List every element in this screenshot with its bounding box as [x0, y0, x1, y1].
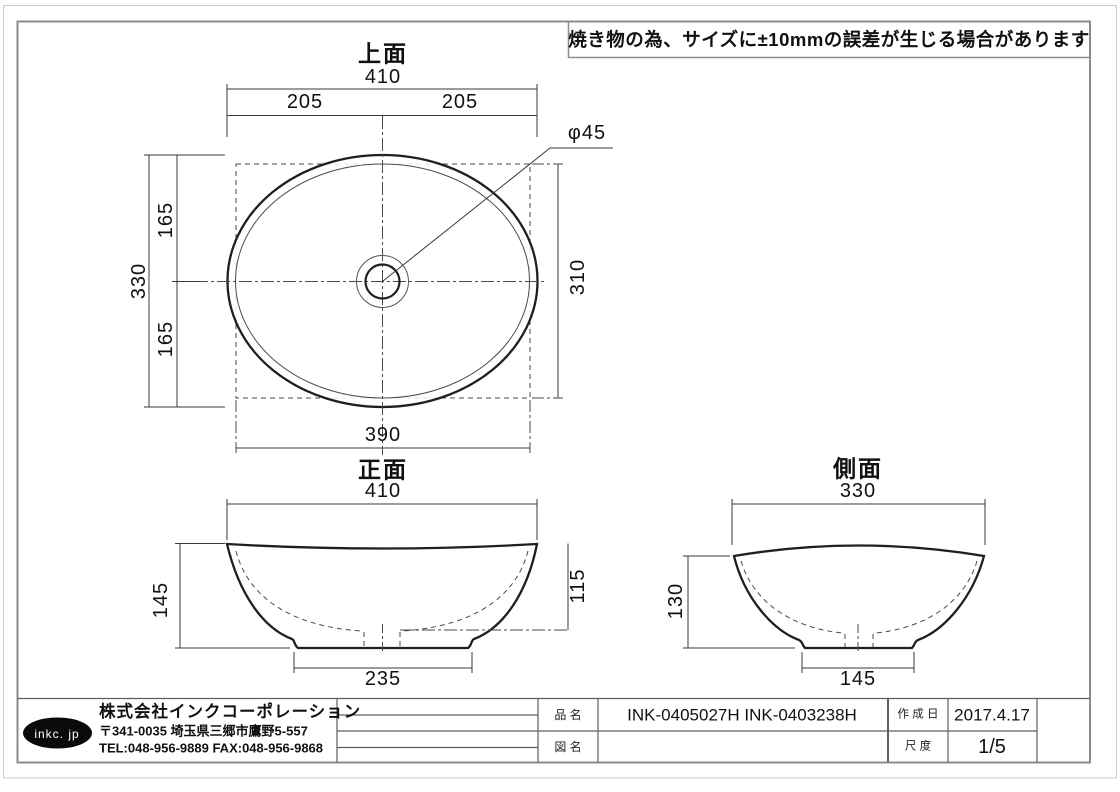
side-height-dim: 130 — [666, 583, 686, 619]
drawing-linework — [0, 0, 1120, 792]
product-name-label: 品 名 — [554, 709, 581, 721]
top-view-linework — [144, 84, 613, 455]
top-width-total-dim: 410 — [365, 67, 401, 87]
page-frame — [4, 6, 1117, 779]
date-value: 2017.4.17 — [954, 707, 1030, 724]
product-name-value: INK-0405027H INK-0403238H — [627, 707, 857, 724]
side-width-dim: 330 — [840, 481, 876, 501]
tolerance-note: 焼き物の為、サイズに±10mmの誤差が生じる場合があります — [568, 31, 1090, 50]
drain-diameter-label: φ45 — [568, 123, 606, 143]
top-width-right-dim: 205 — [442, 92, 478, 112]
top-view-title: 上面 — [358, 43, 408, 66]
company-name: 株式会社インクコーポレーション — [99, 704, 361, 721]
front-view-linework — [175, 499, 568, 673]
top-height-lower-dim: 165 — [156, 321, 176, 357]
scale-label: 尺 度 — [905, 741, 931, 753]
side-base-width-dim: 145 — [840, 669, 876, 689]
top-width-left-dim: 205 — [287, 92, 323, 112]
top-height-total-dim: 330 — [129, 263, 149, 299]
logo-text: inkc. jp — [34, 728, 79, 740]
top-height-upper-dim: 165 — [156, 202, 176, 238]
front-width-dim: 410 — [365, 481, 401, 501]
scale-value: 1/5 — [978, 737, 1006, 757]
company-tel-fax: TEL:048-956-9889 FAX:048-956-9868 — [99, 742, 323, 755]
top-inner-width-dim: 390 — [365, 425, 401, 445]
drawing-name-label: 図 名 — [554, 741, 581, 753]
company-address: 〒341-0035 埼玉県三郷市鷹野5-557 — [99, 725, 308, 738]
top-inner-height-dim: 310 — [568, 259, 588, 295]
drawing-sheet: 焼き物の為、サイズに±10mmの誤差が生じる場合があります 上面 410 205… — [0, 0, 1120, 792]
front-view-title: 正面 — [358, 459, 408, 482]
side-view-linework — [683, 499, 985, 673]
front-base-width-dim: 235 — [365, 669, 401, 689]
front-height-dim: 145 — [151, 582, 171, 618]
side-view-title: 側面 — [833, 458, 883, 481]
front-inner-depth-dim: 115 — [568, 569, 588, 604]
date-label: 作 成 日 — [898, 709, 939, 721]
